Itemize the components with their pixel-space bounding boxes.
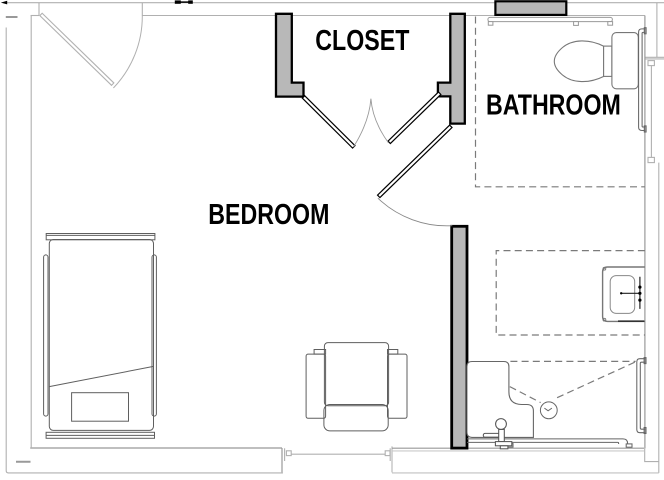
svg-text:BATHROOM: BATHROOM <box>486 88 621 121</box>
svg-text:CLOSET: CLOSET <box>315 23 409 56</box>
svg-text:BEDROOM: BEDROOM <box>208 197 329 230</box>
